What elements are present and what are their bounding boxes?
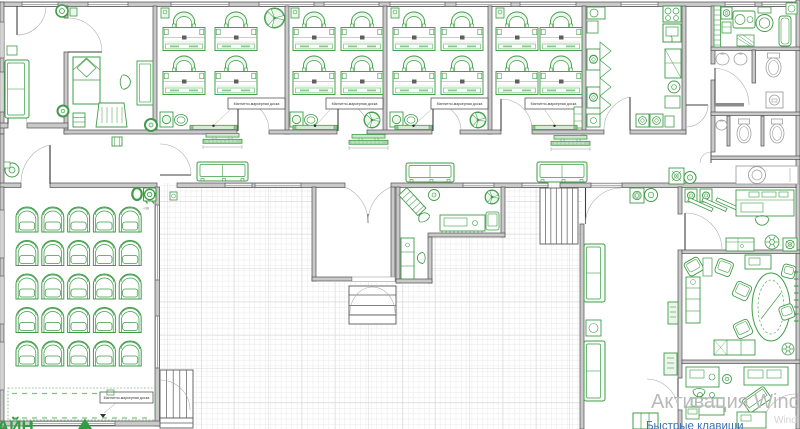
svg-text:Магнитно-маркерная доска: Магнитно-маркерная доска	[531, 102, 577, 106]
svg-text:АЙН: АЙН	[0, 417, 34, 429]
svg-text:Wind: Wind	[774, 415, 797, 426]
svg-text:+38: +38	[143, 207, 149, 211]
svg-text:Магнитно-маркерная доска: Магнитно-маркерная доска	[332, 102, 378, 106]
svg-text:Магнитно-маркерная доска: Магнитно-маркерная доска	[104, 396, 150, 400]
svg-text:Быстрые клавиши: Быстрые клавиши	[646, 421, 744, 429]
svg-text:Активация Windows: Активация Windows	[651, 391, 800, 413]
svg-text:Магнитно-маркерная доска: Магнитно-маркерная доска	[437, 102, 483, 106]
svg-text:Магнитно-маркерная доска: Магнитно-маркерная доска	[234, 102, 280, 106]
